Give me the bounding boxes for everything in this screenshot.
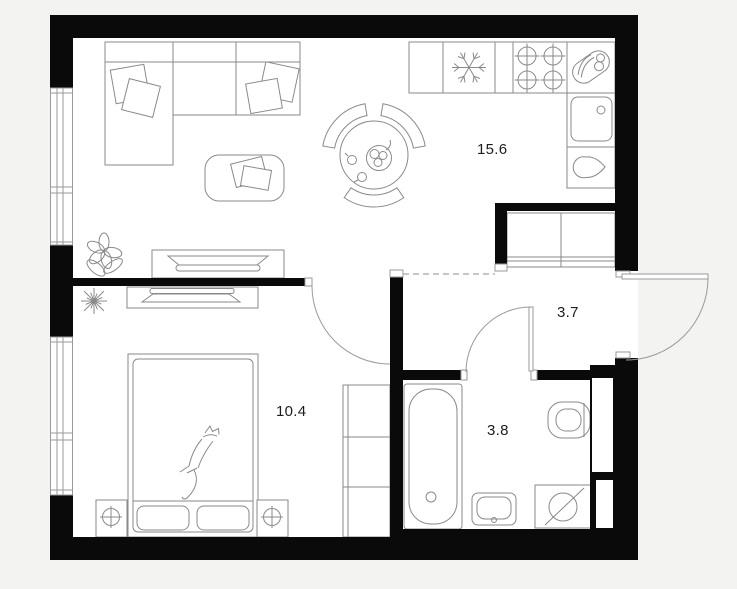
bathtub <box>404 384 462 529</box>
wall <box>615 15 638 271</box>
hall-wardrobe <box>507 213 615 267</box>
dresser-tv <box>127 287 258 308</box>
floor-plan: 15.6 10.4 3.7 3.8 <box>0 0 737 589</box>
room-label-bedroom: 10.4 <box>276 403 306 420</box>
window <box>51 88 73 245</box>
bedroom-wardrobe <box>343 385 390 537</box>
washing-machine-icon <box>535 485 591 528</box>
pillow <box>197 506 249 530</box>
wall <box>495 203 615 211</box>
room-label-hallway: 3.7 <box>557 304 579 321</box>
wall <box>50 15 638 38</box>
wall <box>537 370 590 380</box>
wall <box>615 358 638 560</box>
wall <box>390 370 461 380</box>
toilet <box>548 402 590 438</box>
room-label-bathroom: 3.8 <box>487 422 509 439</box>
wall <box>495 203 507 264</box>
wall <box>403 529 590 538</box>
coffee-table <box>205 155 284 201</box>
spiky-plant-icon <box>81 288 107 314</box>
room-label-living-kitchen: 15.6 <box>477 141 507 158</box>
nightstand <box>96 500 127 537</box>
window <box>51 337 73 495</box>
washbasin <box>472 493 516 525</box>
wall <box>50 15 73 88</box>
double-bed <box>128 354 258 537</box>
wall <box>73 278 305 286</box>
wall <box>50 245 73 337</box>
floor-plan-canvas <box>0 0 737 589</box>
tv-stand <box>152 250 284 278</box>
wall <box>390 277 403 537</box>
nightstand <box>257 500 288 537</box>
wall <box>50 537 638 560</box>
pillow <box>137 506 189 530</box>
